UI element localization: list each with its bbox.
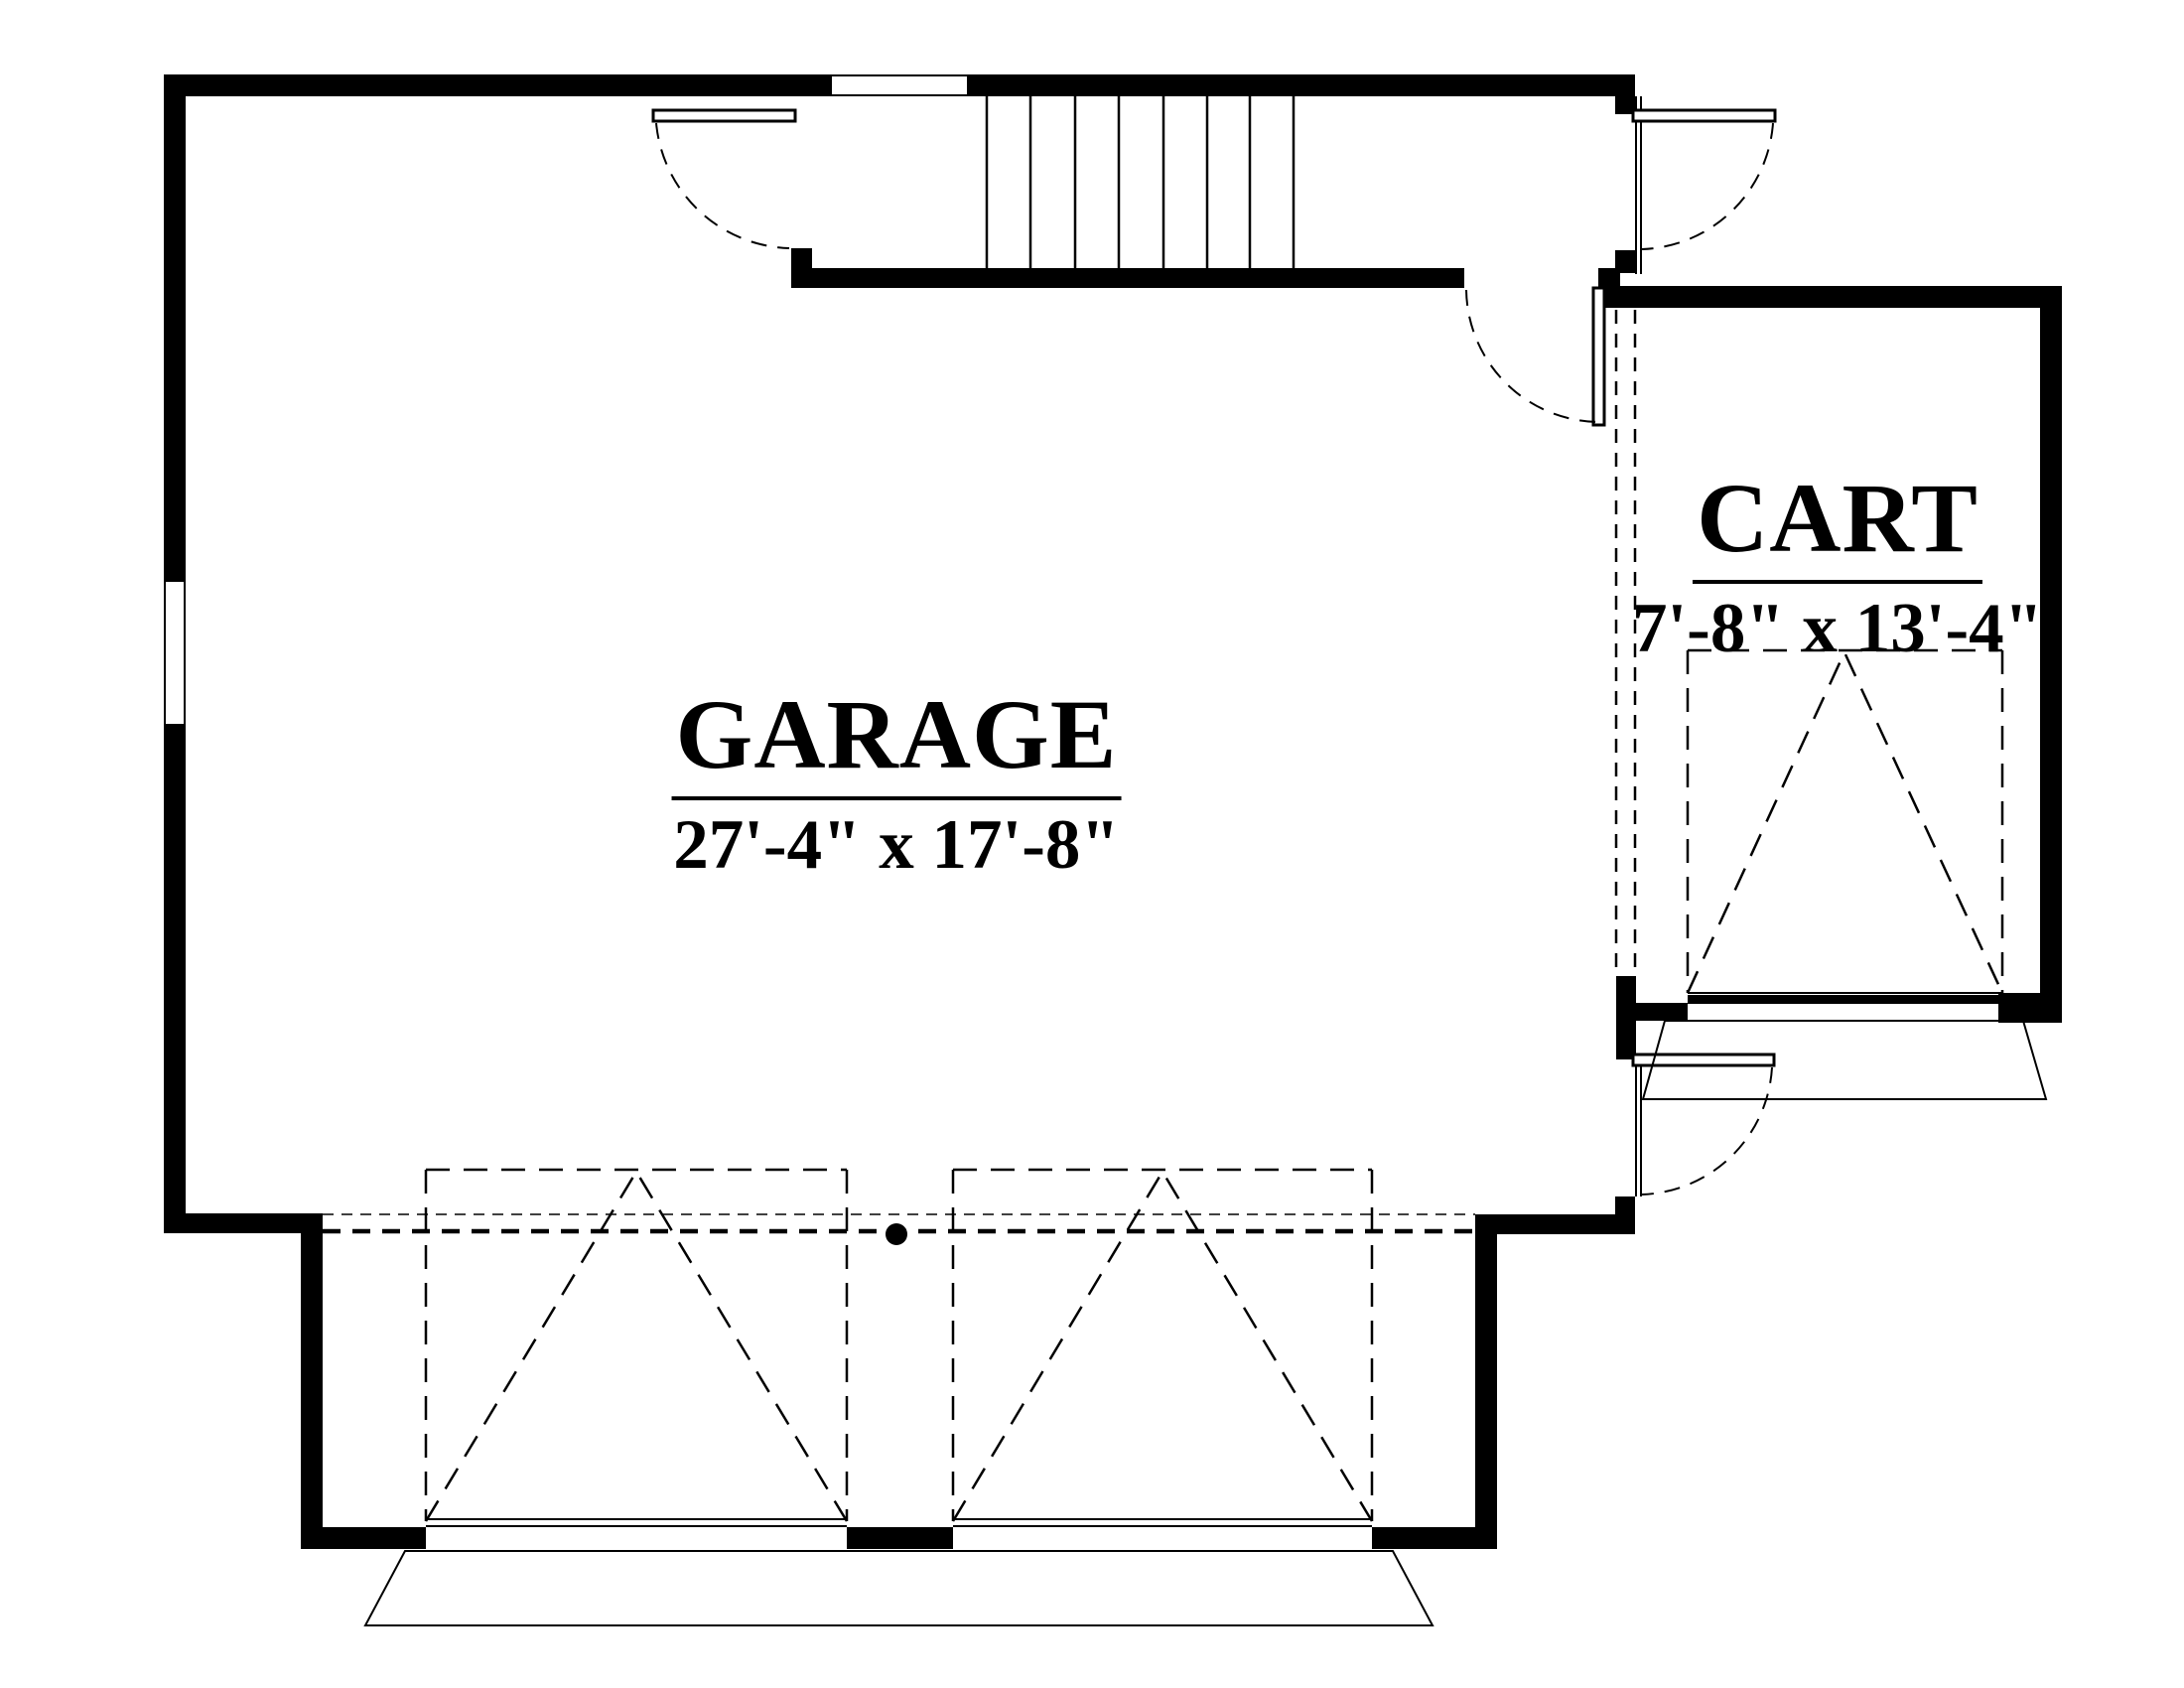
door-leaves [653,110,1775,1065]
windows [165,75,968,725]
overhead-door-left [426,1170,847,1521]
wall-right [2040,286,2062,1023]
jamb-service-door-lower [1615,1196,1635,1214]
hall-door-leaf [1593,288,1604,425]
window-left-wall [165,581,185,725]
jamb-service-door-arm [1636,1003,1688,1021]
wall-cart-top [1601,286,2062,308]
stair-door-leaf [653,110,795,121]
wall-left-lower [301,1233,323,1549]
wall-se-connector [1475,1214,1635,1234]
pier-bottom-left [301,1527,426,1549]
wall-stair-south [791,268,1464,288]
hall-door-arc [1466,290,1598,422]
cart-room-dimensions: 7'-8" x 13'-4" [1632,594,2043,664]
side-entry-door-arc [1642,123,1773,249]
wall-se-vertical [1475,1234,1497,1549]
overhead-door-right [953,1170,1372,1521]
stair-door-arc [656,123,789,248]
sills-and-aprons [365,993,2046,1625]
pier-bottom-middle [847,1527,953,1549]
cart-door-threshold [1688,995,2002,1004]
side-entry-door-leaf [1633,110,1775,121]
jamb-service-door-upper [1616,976,1636,1059]
wall-left-step [164,1213,323,1233]
jamb-hall-door-hinge [1598,268,1620,288]
room-label-garage: GARAGE 27'-4" x 17'-8" [672,683,1122,881]
cart-room-name: CART [1693,467,1982,584]
window-top-wall [831,75,968,95]
garage-room-name: GARAGE [672,683,1122,800]
overhead-door-symbols [426,650,2002,1521]
garage-apron [365,1551,1433,1625]
service-door-arc [1642,1067,1772,1195]
column-dot [886,1223,907,1245]
cart-stub-right [1998,993,2045,1023]
room-label-cart: CART 7'-8" x 13'-4" [1632,467,2043,664]
stair-treads [987,96,1294,268]
jamb-stair-door-strike [791,248,812,268]
overhead-door-cart [1688,650,2002,993]
garage-room-dimensions: 27'-4" x 17'-8" [672,810,1122,881]
floor-plan: GARAGE 27'-4" x 17'-8" CART 7'-8" x 13'-… [0,0,2184,1688]
